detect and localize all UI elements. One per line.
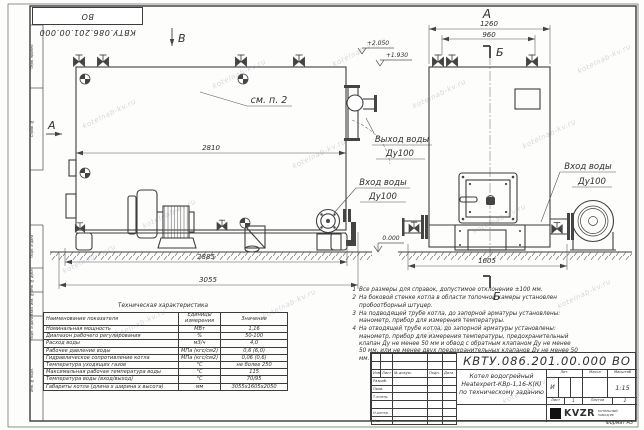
see-ref-label: см. п. 2 (251, 95, 288, 106)
drawing-sheet: { "watermark": "kotelnab-kv.ru", "frame"… (0, 0, 644, 430)
inlet-label-side: Вход воды (359, 178, 407, 188)
front-dimensions (408, 25, 567, 270)
change-row (372, 354, 457, 362)
table-row: Расход водым3/ч4,0 (44, 340, 288, 347)
sig-row: Утв. (372, 417, 457, 425)
table-row: Номинальная мощностьМВт1,16 (44, 326, 288, 333)
mass-value (582, 377, 607, 397)
margin-label-sprav-no: Справ. № (30, 88, 43, 170)
dim-2885: 2885 (197, 253, 215, 261)
inlet-dn-front: Ду100 (577, 177, 606, 187)
product-name: Котел водогрейный Heatexpert-КВр-1,16-К(… (456, 369, 546, 404)
sheet-value: 1 (564, 397, 582, 404)
tech-col-value: Значение (221, 313, 288, 326)
margin-label-podp-data-1: Подп. и дата (30, 225, 43, 268)
outlet-label: Выход воды (375, 135, 429, 145)
sheets-value: 2 (612, 397, 637, 404)
dim-3055: 3055 (199, 276, 217, 284)
note-item: 2На боковой стенке котла в области топоч… (349, 295, 578, 310)
mass-header: Масса (582, 369, 607, 377)
table-row: Максимальная рабочая температура воды°С1… (44, 369, 288, 376)
dim-1260: 1260 (480, 20, 498, 28)
table-row: Рабочее давление водыМПа (кгс/см2)0,6 (6… (44, 347, 288, 354)
table-row: Диапазон рабочего регулирования%50-100 (44, 333, 288, 340)
front-view: 1260 960 1605 А Б Б Вход воды Ду100 (398, 7, 632, 303)
section-b-top: Б (496, 46, 504, 59)
tech-col-name: Наименование показателя (44, 313, 179, 326)
title-block: Изм Лист № докум. Подп. Дата Разраб. Про… (370, 352, 636, 421)
doc-number: КВТУ.086.201.00.000 ВО (456, 353, 637, 369)
kvzr-logo-text: KVZR (564, 408, 595, 419)
margin-label-inv-dubl: Инв. № дубл. (30, 268, 43, 292)
table-row: Габариты котла (длина х ширина х высота)… (44, 383, 288, 390)
sig-header-row: Изм Лист № докум. Подп. Дата (372, 369, 457, 377)
sig-row: Т.контр. (372, 393, 457, 401)
ground-hatch-front (398, 252, 632, 260)
side-view: 2810 2885 3055 +2.050 +1.930 0.000 см. п… (46, 28, 432, 289)
margin-label-vzam-inv: Взам. инв. № (30, 292, 43, 316)
scale-value: 1:15 (607, 377, 637, 397)
signature-table: Изм Лист № докум. Подп. Дата Разраб. Про… (371, 353, 457, 425)
table-row: Температура уходящих газов°Сне более 250 (44, 361, 288, 368)
kvzr-logo-subtext: КОТЕЛЬНЫЙ ЗАВОД РФ (598, 410, 618, 417)
inlet-dn-side: Ду100 (368, 192, 397, 202)
lit-header: Лит. (546, 369, 582, 377)
sheet-label: Лист (546, 397, 564, 404)
sig-row: Разраб. (372, 377, 457, 385)
elev-0000: 0.000 (382, 235, 399, 242)
dim-960: 960 (482, 31, 496, 39)
side-dimensions (59, 153, 358, 289)
sig-row: Пров. (372, 385, 457, 393)
lit-cell-3 (570, 377, 582, 397)
table-row: Температура воды (вход/выход)°С70/95 (44, 376, 288, 383)
dim-2810: 2810 (202, 144, 220, 152)
empty-cell (456, 404, 546, 422)
rotated-doc-number-stamp: КВТУ.086.201.00.000 ВО (32, 7, 143, 25)
view-a-label: А (47, 119, 56, 132)
tech-table-title: Техническая характеристика (43, 303, 283, 309)
elev-2050: +2.050 (367, 40, 389, 47)
company-logo-cell: KVZR КОТЕЛЬНЫЙ ЗАВОД РФ (546, 404, 637, 422)
dim-1605: 1605 (478, 257, 496, 265)
front-view-label: А (482, 7, 491, 21)
outlet-dn: Ду100 (385, 149, 414, 159)
rotated-doc-number: КВТУ.086.201.00.000 ВО (33, 8, 142, 40)
tech-table: Наименование показателя Единицы измерени… (43, 312, 288, 391)
note-item: 3На подводящей трубе котла, до запорной … (349, 311, 578, 326)
change-row (372, 361, 457, 369)
sig-row: Н.контр. (372, 409, 457, 417)
sheets-label: Листов (582, 397, 612, 404)
scale-header: Масштаб (607, 369, 637, 377)
lit-cell-2 (558, 377, 570, 397)
table-row: Гидравлическое сопротивление котлаМПа (к… (44, 354, 288, 361)
lit-value: И (546, 377, 558, 397)
tech-col-units: Единицы измерения (179, 313, 221, 326)
inlet-label-front: Вход воды (564, 162, 612, 172)
view-b-label: В (178, 32, 186, 45)
margin-label-inv-podl: Инв. № подл. (30, 340, 43, 420)
kvzr-logo-icon (550, 408, 561, 419)
margin-label-podp-data-2: Подп. и дата (30, 316, 43, 340)
margin-label-perv-primen: Перв. примен. (30, 25, 43, 88)
note-item: 1Все размеры для справок, допустимое отк… (349, 287, 578, 294)
elev-1930: +1.930 (386, 52, 408, 59)
sig-row (372, 401, 457, 409)
